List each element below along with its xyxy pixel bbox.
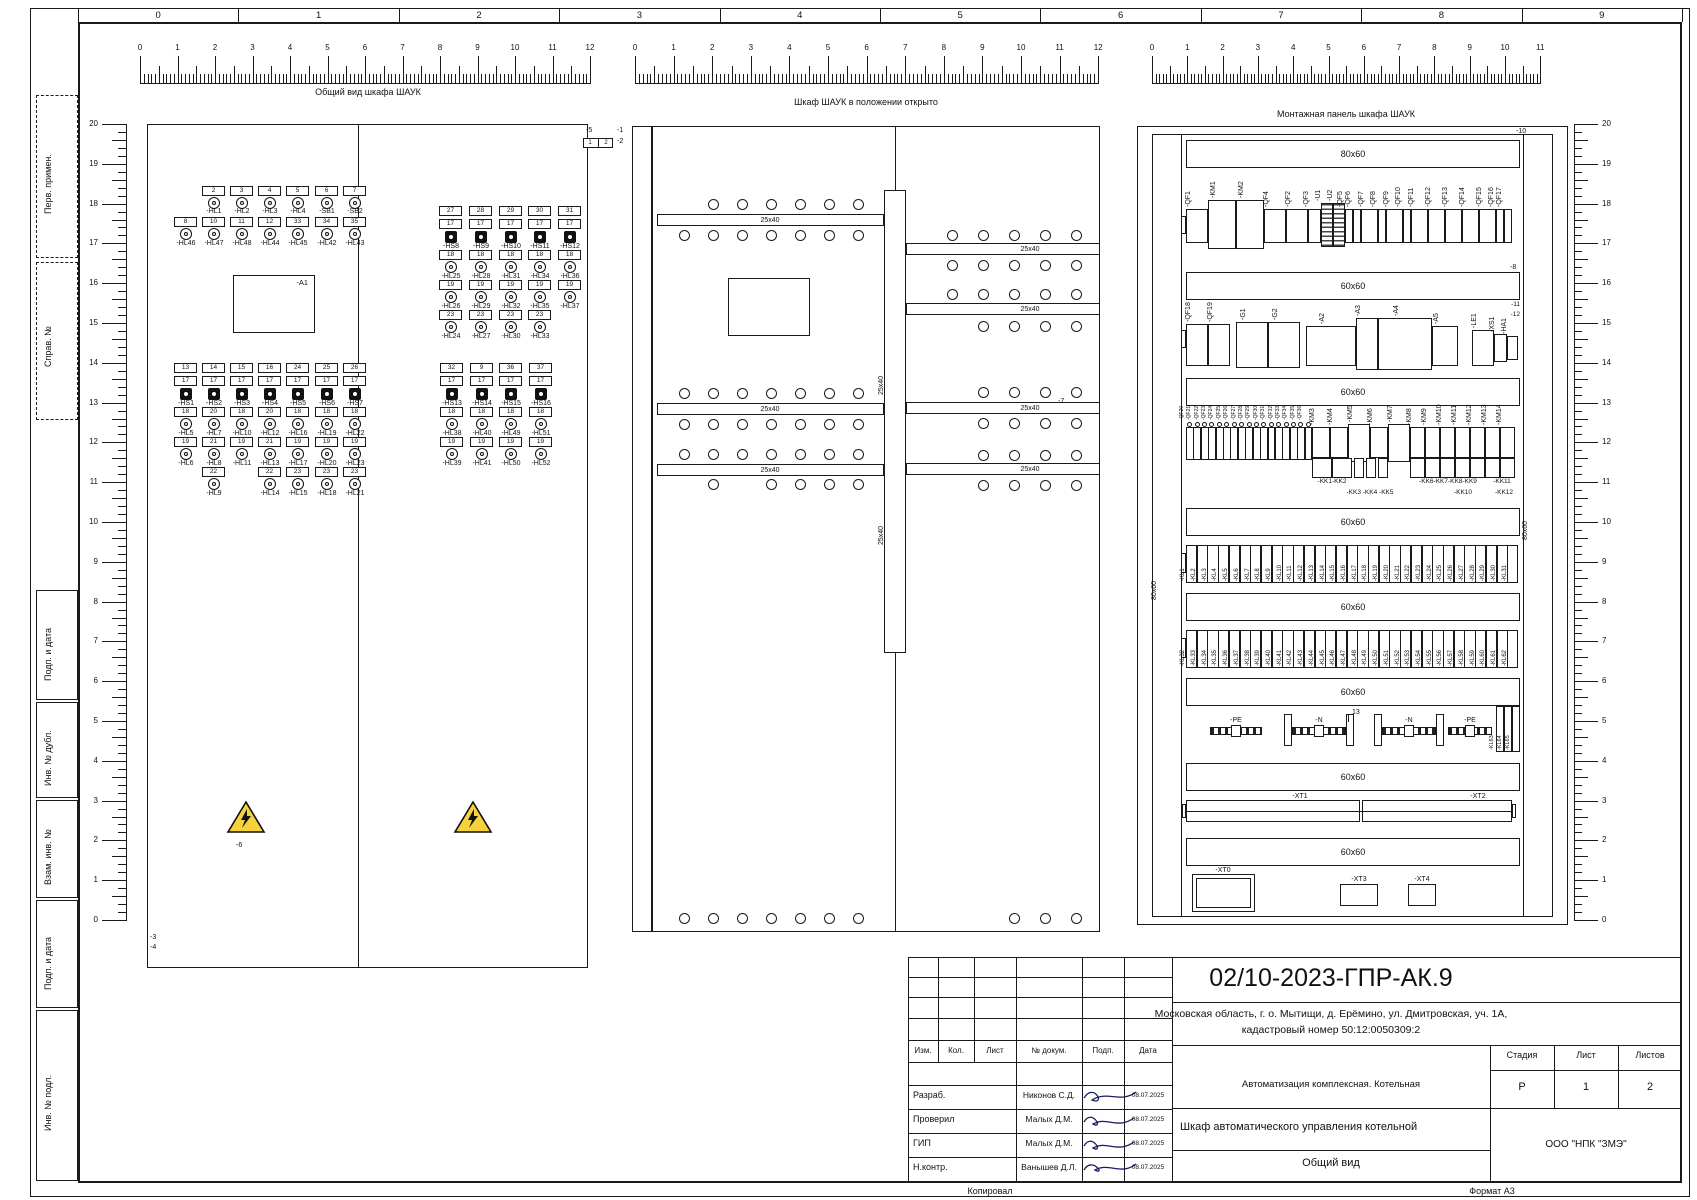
ruler-top-right-minor-tick — [1247, 74, 1248, 84]
ruler-top-middle-minor-tick — [813, 74, 814, 84]
relay-label: -KL52 — [1394, 650, 1402, 666]
ruler-left-number: 3 — [78, 797, 98, 805]
device-designation: -HL6 — [178, 460, 193, 467]
ruler-top-left-minor-tick — [466, 74, 467, 84]
ruler-top-right-minor-tick — [1307, 74, 1308, 84]
ruler-top-right-minor-tick — [1367, 74, 1368, 84]
component — [1306, 326, 1356, 366]
duct-size-label: 60x60 — [1341, 388, 1366, 397]
staff-name: Малых Д.М. — [1025, 1115, 1072, 1124]
column-number: 8 — [1439, 11, 1444, 21]
ruler-top-right-minor-tick — [1166, 74, 1167, 84]
column-number: 2 — [476, 11, 481, 21]
ruler-top-middle-number: 11 — [1055, 44, 1063, 52]
ruler-top-right-number: 0 — [1150, 44, 1154, 52]
busbar-isolator — [1284, 714, 1292, 746]
callout: -5 — [586, 127, 592, 134]
ruler-right-tick — [1574, 243, 1598, 244]
doc-number: 02/10-2023-ГПР-АК.9 — [1209, 966, 1452, 991]
ruler-top-middle-tick — [1060, 56, 1061, 84]
ruler-top-right-number: 2 — [1220, 44, 1224, 52]
wire-number-box: 17 — [499, 219, 522, 229]
device-designation: -HS7 — [347, 400, 363, 407]
ruler-top-right-minor-tick — [1526, 74, 1527, 84]
mounting-hole — [795, 479, 806, 490]
device-designation: -HL50 — [501, 460, 520, 467]
device-designation: -HL46 — [176, 240, 195, 247]
rev-header-kol: Кол. — [948, 1047, 964, 1055]
ruler-left-minor — [118, 912, 126, 913]
wire-number-box: 18 — [528, 250, 551, 260]
component — [1472, 330, 1494, 366]
indicator-lamp-icon — [475, 291, 487, 303]
ruler-top-left-minor-tick — [148, 74, 149, 84]
ruler-top-middle-minor-tick — [1029, 74, 1030, 84]
device-designation: -HS13 — [442, 400, 462, 407]
device-designation: -HS11 — [530, 243, 549, 250]
wire-number-box: 17 — [528, 219, 551, 229]
ruler-left-minor — [118, 665, 126, 666]
ruler-top-left-minor-tick — [151, 74, 152, 84]
ruler-right-minor — [1574, 371, 1582, 372]
mounting-hole — [1071, 450, 1082, 461]
mounting-hole — [824, 449, 835, 460]
ruler-top-middle-number: 3 — [749, 44, 753, 52]
front-view-title: Общий вид шкафа ШАУК — [315, 88, 421, 97]
relay-label: -KL9 — [1265, 568, 1273, 581]
ruler-top-left-minor-tick — [181, 74, 182, 84]
ruler-top-right-number: 9 — [1467, 44, 1471, 52]
staff-role: ГИП — [913, 1139, 931, 1148]
ruler-top-left-number: 3 — [250, 44, 254, 52]
ruler-top-left-minor-tick — [508, 74, 509, 84]
ruler-left-minor — [118, 275, 126, 276]
ruler-left-minor — [118, 832, 126, 833]
mounting-hole — [795, 449, 806, 460]
mounting-hole — [737, 913, 748, 924]
wire-number-box: 18 — [230, 407, 253, 417]
wire-number-box: 18 — [558, 250, 581, 260]
ruler-left-tick — [102, 283, 126, 284]
busbar-holder — [1314, 725, 1324, 737]
ruler-left-minor — [112, 538, 126, 539]
ruler-top-left-tick — [553, 56, 554, 84]
selector-switch-icon — [475, 231, 487, 243]
indicator-lamp-icon — [321, 418, 333, 430]
wire-number-box: 19 — [440, 437, 463, 447]
column-number: 3 — [637, 11, 642, 21]
contactor — [1312, 427, 1330, 458]
relay-label: -KL49 — [1361, 650, 1369, 666]
ruler-right-minor — [1574, 339, 1588, 340]
ruler-left-tick — [102, 164, 126, 165]
drawing-sheet: 0123456789Перв. примен.Справ. №Подп. и д… — [0, 0, 1697, 1200]
mounting-hole — [824, 388, 835, 399]
contactor — [1330, 427, 1348, 458]
component-label: -A4 — [1393, 305, 1401, 316]
tb-line — [908, 957, 1682, 958]
mounting-hole — [1040, 289, 1051, 300]
ruler-top-middle-minor-tick — [743, 74, 744, 84]
ruler-top-middle-minor-tick — [1075, 74, 1076, 84]
ruler-top-right-minor-tick — [1268, 74, 1269, 84]
mounting-hole — [1009, 480, 1020, 491]
selector-switch-icon — [505, 388, 517, 400]
relay-label: -KL3 — [1201, 568, 1209, 581]
ruler-top-left-minor-tick — [496, 66, 497, 84]
ruler-top-middle-minor-tick — [1040, 66, 1041, 84]
device-designation: -HL23 — [345, 460, 364, 467]
ruler-right-minor — [1574, 188, 1582, 189]
wire-number-box: 18 — [469, 250, 492, 260]
ruler-top-left-tick — [215, 56, 216, 84]
ruler-left-number: 17 — [78, 239, 98, 247]
ruler-top-left-number: 11 — [548, 44, 556, 52]
ruler-right-minor — [1574, 697, 1588, 698]
rev-header-podp: Подп. — [1092, 1047, 1113, 1055]
relay-label: -KL34 — [1201, 650, 1209, 666]
device-designation: -HL4 — [290, 208, 305, 215]
mounting-hole — [1040, 480, 1051, 491]
ruler-top-middle-minor-tick — [647, 74, 648, 84]
callout: -1 — [617, 127, 623, 134]
device-designation: -HL9 — [206, 490, 221, 497]
component-label: -QF12 — [1425, 187, 1433, 207]
ruler-right-minor — [1574, 291, 1582, 292]
ruler-left-number: 11 — [78, 478, 98, 486]
ruler-top-middle-minor-tick — [959, 74, 960, 84]
wire-number-box: 11 — [230, 217, 253, 227]
wire-number-box: 4 — [258, 186, 281, 196]
ruler-top-left-minor-tick — [275, 74, 276, 84]
ruler-top-left-minor-tick — [234, 66, 235, 84]
ruler-top-middle-tick — [712, 56, 713, 84]
device-designation: -HS6 — [319, 400, 335, 407]
wire-number-box: 17 — [440, 376, 463, 386]
ruler-top-right-minor-tick — [1191, 74, 1192, 84]
component — [1353, 209, 1361, 243]
ruler-right-minor — [1574, 713, 1582, 714]
wire-number-box: 25 — [315, 363, 338, 373]
selector-switch-icon — [236, 388, 248, 400]
ruler-top-left-number: 6 — [363, 44, 367, 52]
component-label: -KM8 — [1406, 408, 1414, 425]
ruler-right-minor — [1574, 426, 1582, 427]
terminal-label: -XT4 — [1414, 876, 1429, 883]
component-label: -KM9 — [1421, 408, 1429, 425]
wire-number-box: 18 — [174, 407, 197, 417]
ruler-top-right-minor-tick — [1396, 74, 1397, 84]
mounting-hole — [978, 418, 989, 429]
ruler-top-middle-minor-tick — [778, 74, 779, 84]
ruler-right-number: 12 — [1602, 438, 1611, 446]
component — [1186, 209, 1208, 243]
component — [1308, 209, 1321, 243]
ruler-top-right-tick — [1470, 56, 1471, 84]
vertical-duct-left — [1152, 134, 1182, 917]
selector-switch-icon — [535, 388, 547, 400]
ruler-top-middle-minor-tick — [766, 74, 767, 84]
ruler-right-tick — [1574, 920, 1598, 921]
ruler-left-number: 4 — [78, 757, 98, 765]
ruler-left-minor — [112, 379, 126, 380]
device-designation: -HL20 — [317, 460, 336, 467]
ruler-top-right-tick — [1152, 56, 1153, 84]
ruler-top-left-minor-tick — [256, 74, 257, 84]
ruler-right-minor — [1574, 729, 1582, 730]
ruler-top-right-tick — [1329, 56, 1330, 84]
mounting-hole — [947, 230, 958, 241]
ruler-top-right-minor-tick — [1216, 74, 1217, 84]
ruler-top-middle-minor-tick — [878, 74, 879, 84]
ruler-top-left-number: 4 — [288, 44, 292, 52]
ruler-top-left-tick — [590, 56, 591, 84]
ruler-top-left-minor-tick — [418, 74, 419, 84]
ruler-left-minor — [112, 220, 126, 221]
device-designation: -HS2 — [206, 400, 222, 407]
component — [1236, 322, 1268, 368]
device-designation: -HS5 — [290, 400, 306, 407]
mounting-hole — [708, 913, 719, 924]
ruler-right-tick — [1574, 562, 1598, 563]
ruler-left-number: 7 — [78, 637, 98, 645]
component-label: -QF10 — [1395, 187, 1403, 207]
mounting-hole — [737, 230, 748, 241]
ruler-right-minor — [1574, 331, 1582, 332]
ruler-top-left-tick — [403, 56, 404, 84]
wire-number-box: 17 — [558, 219, 581, 229]
ruler-right-minor — [1574, 395, 1582, 396]
ruler-top-left-minor-tick — [245, 74, 246, 84]
ruler-top-right-minor-tick — [1194, 74, 1195, 84]
ruler-left-minor — [118, 212, 126, 213]
component — [1428, 209, 1445, 243]
contactor — [1470, 427, 1485, 458]
ruler-left-minor — [112, 259, 126, 260]
ruler-left-minor — [118, 824, 126, 825]
column-divider — [238, 8, 239, 22]
wire-number-box: 2 — [202, 186, 225, 196]
wire-number-box: 19 — [499, 280, 522, 290]
ruler-right-minor — [1574, 665, 1582, 666]
ruler-top-middle-minor-tick — [809, 66, 810, 84]
ruler-top-middle-minor-tick — [1017, 74, 1018, 84]
ruler-left-minor — [118, 753, 126, 754]
ruler-top-right-minor-tick — [1163, 74, 1164, 84]
ruler-left-tick — [102, 880, 126, 881]
indicator-lamp-icon — [264, 228, 276, 240]
ruler-right-minor — [1574, 872, 1582, 873]
ruler-top-middle-minor-tick — [1067, 74, 1068, 84]
ruler-top-middle-number: 0 — [633, 44, 637, 52]
duct-size-label: 25x40 — [878, 526, 886, 545]
callout: -12 — [1511, 312, 1520, 319]
component — [1386, 209, 1403, 243]
ruler-top-middle-minor-tick — [894, 74, 895, 84]
ruler-right-minor — [1574, 554, 1582, 555]
ruler-top-middle-tick — [674, 56, 675, 84]
component-label: -U2 — [1327, 190, 1335, 201]
ruler-top-middle-tick — [828, 56, 829, 84]
address-line2: кадастровый номер 50:12:0050309:2 — [1242, 1025, 1421, 1036]
connector-cell: 2 — [604, 140, 607, 146]
ruler-top-right-minor-tick — [1254, 74, 1255, 84]
selector-switch-icon — [349, 388, 361, 400]
mounting-hole — [1009, 418, 1020, 429]
device-designation: -HS16 — [531, 400, 551, 407]
device-designation: -HS9 — [473, 243, 489, 250]
indicator-lamp-icon — [208, 478, 220, 490]
component-label: -KM13 — [1481, 404, 1489, 425]
ruler-top-left-minor-tick — [410, 74, 411, 84]
wire-number-box: 17 — [174, 376, 197, 386]
component-label: -QF2 — [1285, 191, 1293, 207]
ruler-right-tick — [1574, 721, 1598, 722]
ruler-left-minor — [112, 817, 126, 818]
wire-number-box: 19 — [470, 437, 493, 447]
rotated-label: 80x60 — [1522, 521, 1530, 540]
ruler-top-left-number: 2 — [213, 44, 217, 52]
component — [1462, 209, 1479, 243]
callout: -7 — [1058, 398, 1064, 405]
ruler-top-right-number: 8 — [1432, 44, 1436, 52]
ruler-top-right-minor-tick — [1237, 74, 1238, 84]
ruler-top-left-minor-tick — [279, 74, 280, 84]
ruler-top-middle-minor-tick — [855, 74, 856, 84]
ruler-top-left-tick — [328, 56, 329, 84]
indicator-lamp-icon — [534, 261, 546, 273]
mounting-hole — [1071, 387, 1082, 398]
ruler-top-left-minor-tick — [170, 74, 171, 84]
component — [1445, 209, 1462, 243]
ruler-top-left-minor-tick — [208, 74, 209, 84]
ruler-top-middle-minor-tick — [967, 74, 968, 84]
ruler-top-left-minor-tick — [474, 74, 475, 84]
wire-number-box: 29 — [499, 206, 522, 216]
ruler-right-minor — [1574, 618, 1588, 619]
device-designation: -HL16 — [288, 430, 307, 437]
breaker-toggle — [1187, 422, 1192, 427]
ruler-left-minor — [118, 848, 126, 849]
wire-number-box: 17 — [258, 376, 281, 386]
duct-size-label: 25x40 — [878, 376, 886, 395]
ruler-left-tick — [102, 323, 126, 324]
component-label: -U1 — [1315, 190, 1323, 201]
contactor — [1388, 424, 1410, 462]
relay-label: -KL44 — [1308, 650, 1316, 666]
ruler-top-right-tick — [1505, 56, 1506, 84]
tb-line — [908, 997, 1172, 998]
ruler-top-middle-minor-tick — [990, 74, 991, 84]
ruler-top-right-number: 5 — [1326, 44, 1330, 52]
ruler-top-left-minor-tick — [283, 74, 284, 84]
wire-number-box: 5 — [286, 186, 309, 196]
device-designation: -HL43 — [345, 240, 364, 247]
ruler-top-left-minor-tick — [350, 74, 351, 84]
ruler-top-left-minor-tick — [144, 74, 145, 84]
ruler-top-left-minor-tick — [560, 74, 561, 84]
ruler-left-minor — [118, 395, 126, 396]
ruler-top-middle-number: 4 — [787, 44, 791, 52]
relay-label: -KL61 — [1490, 650, 1498, 666]
ruler-top-middle-minor-tick — [728, 74, 729, 84]
ruler-top-right-minor-tick — [1403, 74, 1404, 84]
ruler-right-minor — [1574, 180, 1588, 181]
wire-number-box: 19 — [174, 437, 197, 447]
indicator-lamp-icon — [180, 448, 192, 460]
ruler-top-right-minor-tick — [1170, 66, 1171, 84]
ruler-left-tick — [102, 482, 126, 483]
ruler-top-middle-minor-tick — [1087, 74, 1088, 84]
ruler-top-right-minor-tick — [1208, 74, 1209, 84]
terminal-label: -XT0 — [1215, 867, 1230, 874]
ruler-top-left-minor-tick — [185, 74, 186, 84]
ruler-top-right-minor-tick — [1378, 74, 1379, 84]
relay-label: -KL45 — [1319, 650, 1327, 666]
relay-label: -KL64 — [1496, 735, 1504, 750]
wire-number-box: 18 — [439, 250, 462, 260]
staff-role: Н.контр. — [913, 1163, 948, 1172]
thermal-relay-label: -KK1-KK2 — [1318, 479, 1347, 486]
component-label: -KM12 — [1466, 404, 1474, 425]
relay-label: -KL15 — [1329, 565, 1337, 581]
ruler-top-middle-minor-tick — [1025, 74, 1026, 84]
mounting-hole — [1009, 260, 1020, 271]
ruler-top-left-minor-tick — [219, 74, 220, 84]
ruler-left-minor — [118, 864, 126, 865]
ruler-top-left-tick — [253, 56, 254, 84]
ruler-top-left-minor-tick — [459, 66, 460, 84]
ruler-left-minor — [118, 450, 126, 451]
column-divider — [1201, 8, 1202, 22]
ruler-left-minor — [118, 227, 126, 228]
ruler-top-middle-minor-tick — [1056, 74, 1057, 84]
ruler-right-minor — [1574, 267, 1582, 268]
tb-line — [908, 1040, 1172, 1041]
selector-switch-icon — [445, 231, 457, 243]
busbar-label: -PE — [1230, 717, 1242, 724]
ruler-right-minor — [1574, 506, 1582, 507]
component — [1378, 209, 1386, 243]
ruler-right-number: 15 — [1602, 319, 1611, 327]
device-designation: -HS14 — [472, 400, 492, 407]
ruler-top-left-minor-tick — [429, 74, 430, 84]
component-label: -KM2 — [1238, 181, 1246, 198]
component — [1504, 209, 1512, 243]
ruler-top-left-minor-tick — [268, 74, 269, 84]
ruler-top-left-number: 8 — [438, 44, 442, 52]
drawing-name: Общий вид — [1302, 1158, 1360, 1169]
ruler-left-minor — [112, 299, 126, 300]
ruler-right-number: 19 — [1602, 160, 1611, 168]
mounting-hole — [1071, 480, 1082, 491]
breaker-toggle — [1276, 422, 1281, 427]
thermal-relay — [1425, 458, 1440, 478]
mounting-hole — [1071, 289, 1082, 300]
component-label: -HA1 — [1501, 318, 1509, 334]
device-designation: -HL40 — [472, 430, 491, 437]
ruler-right-minor — [1574, 148, 1582, 149]
ruler-right-minor — [1574, 657, 1588, 658]
relay-label: -KL46 — [1329, 650, 1337, 666]
ruler-top-left-minor-tick — [260, 74, 261, 84]
device-designation: -HL10 — [232, 430, 251, 437]
component — [1479, 209, 1496, 243]
indicator-lamp-icon — [292, 448, 304, 460]
wire-number-box: 19 — [528, 280, 551, 290]
margin-label: Перв. примен. — [44, 155, 52, 215]
ruler-top-right-minor-tick — [1336, 74, 1337, 84]
